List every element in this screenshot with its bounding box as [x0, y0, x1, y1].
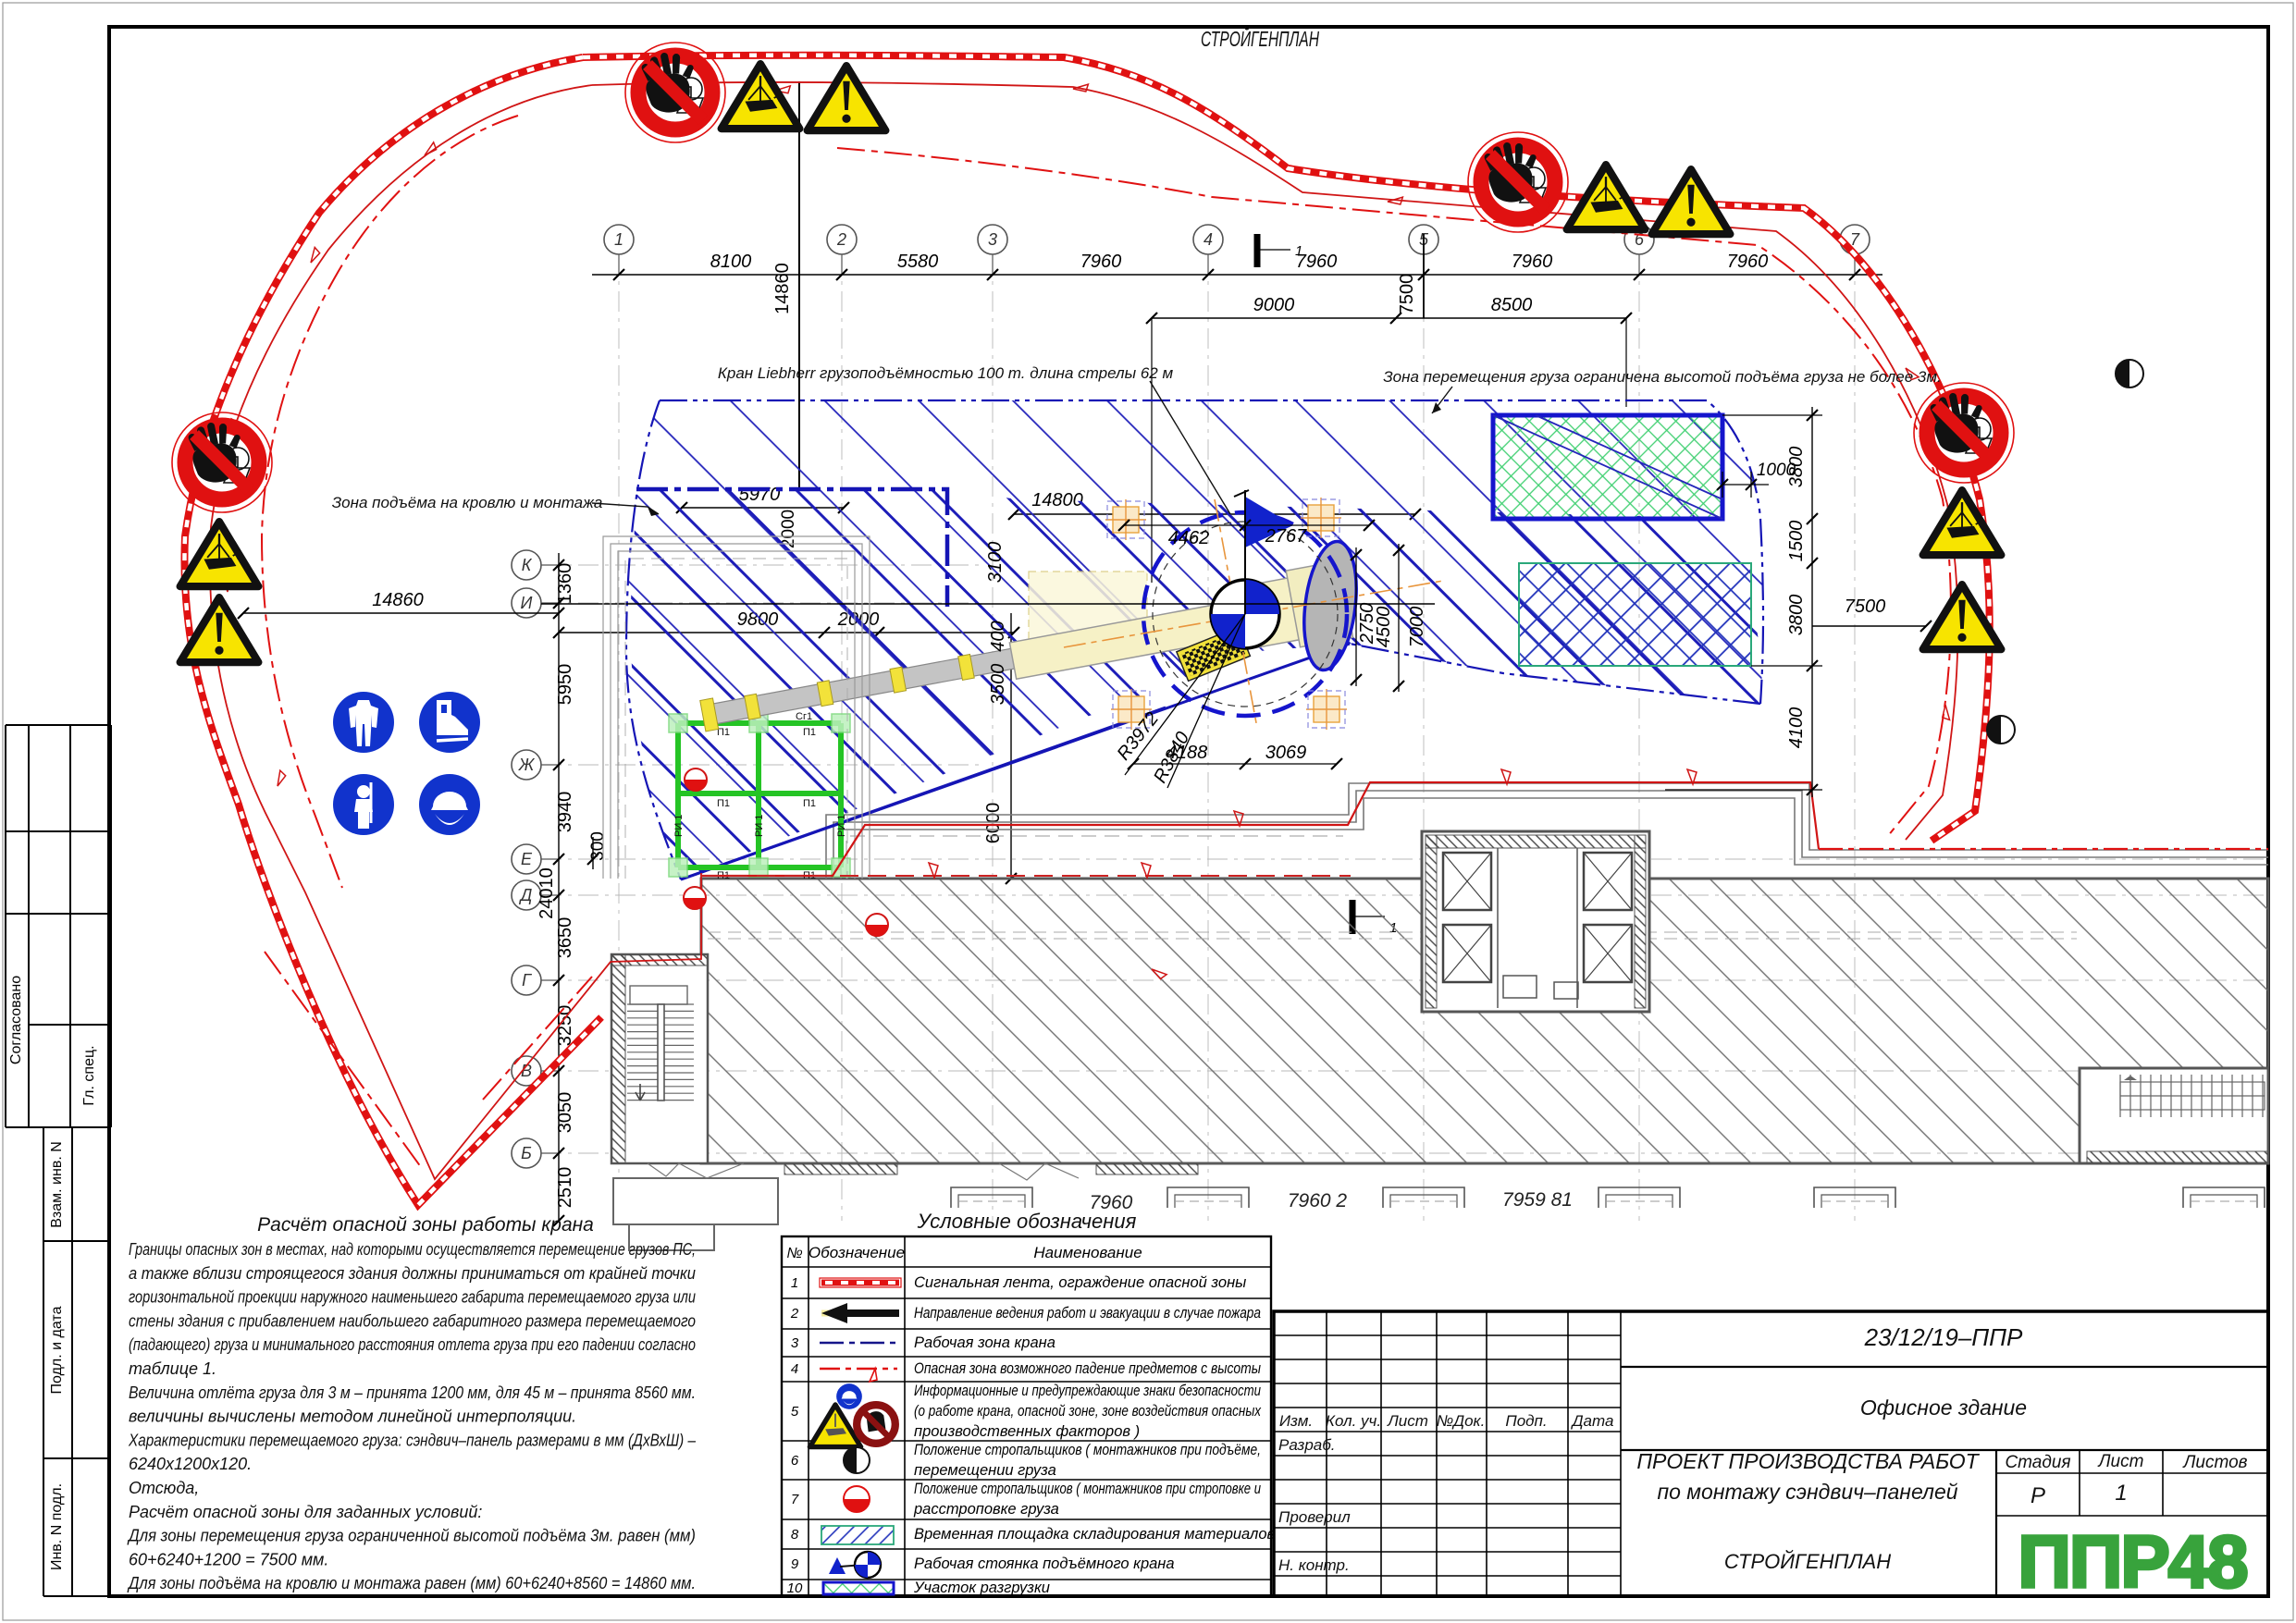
svg-text:Листов: Листов — [2181, 1453, 2247, 1472]
svg-text:Отсюда,: Отсюда, — [129, 1479, 199, 1497]
svg-text:ППР48: ППР48 — [2018, 1520, 2247, 1603]
svg-text:а также вблизи строящегося: а также вблизи строящегося здания должны… — [129, 1264, 696, 1283]
svg-text:1: 1 — [2115, 1481, 2127, 1506]
svg-text:Лист: Лист — [1387, 1412, 1428, 1430]
svg-text:Направление ведения работ и эв: Направление ведения работ и эвакуации в … — [914, 1305, 1261, 1322]
svg-text:Ж: Ж — [518, 756, 536, 774]
svg-text:Подл. и дата: Подл. и дата — [49, 1306, 65, 1394]
svg-text:Обозначение: Обозначение — [809, 1244, 905, 1261]
svg-text:3069: 3069 — [1265, 743, 1307, 763]
svg-text:СТРОЙГЕНПЛАН: СТРОЙГЕНПЛАН — [1201, 26, 1319, 51]
svg-text:3: 3 — [791, 1335, 799, 1351]
svg-text:Д: Д — [519, 886, 533, 904]
svg-text:Офисное здание: Офисное здание — [1860, 1396, 2027, 1420]
svg-text:7959 81: 7959 81 — [1502, 1189, 1573, 1211]
svg-text:горизонтальной проекции нару: горизонтальной проекции наружного наимен… — [129, 1288, 696, 1307]
svg-text:Положение стропальщиков ( монт: Положение стропальщиков ( монтажников пр… — [914, 1481, 1261, 1497]
svg-text:Расчёт опасной зоны для за: Расчёт опасной зоны для заданных условий… — [129, 1503, 482, 1521]
svg-text:4: 4 — [791, 1361, 798, 1377]
svg-text:400: 400 — [988, 621, 1008, 651]
svg-text:4462: 4462 — [1168, 528, 1210, 548]
svg-text:3800: 3800 — [1786, 447, 1807, 488]
svg-text:Подп.: Подп. — [1505, 1412, 1547, 1430]
svg-text:П1: П1 — [717, 798, 730, 809]
svg-text:Е: Е — [521, 850, 533, 868]
svg-text:14860: 14860 — [372, 590, 424, 610]
svg-text:4100: 4100 — [1786, 707, 1807, 749]
svg-text:2: 2 — [836, 230, 846, 249]
svg-text:4: 4 — [1204, 230, 1213, 249]
svg-text:5950: 5950 — [555, 664, 575, 706]
svg-text:Границы опасных зон в мест: Границы опасных зон в местах, над которы… — [129, 1240, 696, 1259]
svg-text:Б: Б — [521, 1144, 532, 1162]
svg-text:(падающего) груза и минимал: (падающего) груза и минимального расстоя… — [129, 1335, 696, 1354]
svg-text:по монтажу сэндвич–панелей: по монтажу сэндвич–панелей — [1657, 1480, 1957, 1504]
svg-text:8: 8 — [791, 1527, 799, 1543]
svg-text:23/12/19–ППР: 23/12/19–ППР — [1864, 1323, 2023, 1351]
svg-text:таблице 1.: таблице 1. — [129, 1359, 216, 1378]
svg-text:Опасная зона возможного падени: Опасная зона возможного падение предмето… — [914, 1360, 1261, 1377]
svg-text:5580: 5580 — [897, 252, 939, 272]
svg-text:6000: 6000 — [983, 803, 1004, 844]
svg-text:СТРОЙГЕНПЛАН: СТРОЙГЕНПЛАН — [1724, 1549, 1891, 1573]
svg-text:5: 5 — [791, 1404, 799, 1420]
svg-text:1: 1 — [1295, 243, 1302, 259]
svg-text:Зона перемещения груза ограни: Зона перемещения груза ограничена высото… — [1383, 368, 1941, 386]
svg-text:Лист: Лист — [2097, 1452, 2144, 1471]
svg-text:Кран Liebherr грузоподъёмност: Кран Liebherr грузоподъёмностью 100 т. д… — [718, 364, 1174, 382]
svg-text:Изм.: Изм. — [1279, 1412, 1313, 1430]
svg-text:Согласовано: Согласовано — [8, 976, 24, 1064]
svg-text:№: № — [786, 1246, 802, 1261]
svg-text:Условные обозначения: Условные обозначения — [917, 1210, 1137, 1233]
svg-text:величины вычислены методом: величины вычислены методом линейной инте… — [129, 1408, 576, 1426]
svg-text:1: 1 — [614, 230, 623, 249]
svg-text:Гл. спец.: Гл. спец. — [81, 1045, 97, 1105]
svg-text:РИ 1: РИ 1 — [754, 815, 765, 837]
svg-text:Для зоны перемещения груза: Для зоны перемещения груза ограниченной … — [127, 1527, 696, 1545]
svg-text:1500: 1500 — [1786, 521, 1807, 562]
svg-text:Временная площадка складирован: Временная площадка складирования материа… — [914, 1526, 1276, 1543]
svg-text:расстроповке груза: расстроповке груза — [913, 1501, 1059, 1518]
svg-text:3800: 3800 — [1786, 595, 1807, 636]
svg-text:Р: Р — [2031, 1483, 2045, 1508]
svg-text:24010: 24010 — [537, 867, 557, 919]
svg-text:Г: Г — [522, 971, 532, 990]
svg-text:10: 10 — [787, 1580, 803, 1596]
svg-text:7: 7 — [791, 1492, 799, 1507]
svg-text:Дата: Дата — [1571, 1412, 1614, 1430]
svg-text:7960: 7960 — [1080, 252, 1122, 272]
svg-text:1: 1 — [791, 1275, 798, 1291]
svg-text:Для зоны подъёма на кровлю: Для зоны подъёма на кровлю и монтажа рав… — [127, 1574, 696, 1592]
svg-text:Характеристики перемещаемого: Характеристики перемещаемого груза: сэнд… — [128, 1431, 697, 1449]
svg-text:6240х1200х120.: 6240х1200х120. — [129, 1455, 252, 1473]
svg-text:9000: 9000 — [1253, 295, 1295, 315]
svg-text:3650: 3650 — [555, 917, 575, 959]
svg-text:7960: 7960 — [1512, 252, 1553, 272]
svg-text:9: 9 — [791, 1556, 799, 1572]
svg-text:стены здания с прибавлением: стены здания с прибавлением наибольшего … — [129, 1311, 696, 1330]
svg-text:8500: 8500 — [1491, 295, 1533, 315]
svg-text:Н. контр.: Н. контр. — [1278, 1556, 1350, 1574]
svg-text:Рабочая стоянка подъёмного кра: Рабочая стоянка подъёмного крана — [914, 1555, 1175, 1572]
svg-text:4500: 4500 — [1374, 607, 1394, 648]
svg-text:Стадия: Стадия — [2005, 1453, 2070, 1472]
svg-text:К: К — [522, 556, 533, 574]
svg-text:2: 2 — [790, 1306, 799, 1322]
svg-text:Разраб.: Разраб. — [1278, 1436, 1336, 1454]
svg-text:2767: 2767 — [1265, 526, 1307, 547]
svg-text:7960 2: 7960 2 — [1288, 1190, 1348, 1211]
svg-text:7500: 7500 — [1845, 596, 1886, 617]
svg-text:перемещении груза: перемещении груза — [914, 1462, 1056, 1479]
svg-text:300: 300 — [588, 831, 608, 861]
svg-text:№Док.: №Док. — [1437, 1412, 1486, 1430]
svg-text:Величина отлёта груза для: Величина отлёта груза для 3 м – принята … — [129, 1383, 696, 1402]
svg-text:производственных факторов ): производственных факторов ) — [914, 1423, 1140, 1440]
svg-text:6: 6 — [791, 1453, 799, 1469]
svg-text:Сг1: Сг1 — [796, 711, 812, 722]
svg-text:3500: 3500 — [988, 664, 1008, 706]
svg-text:2510: 2510 — [555, 1167, 575, 1209]
svg-text:(о работе крана, опасной з: (о работе крана, опасной зоне, зоне возд… — [914, 1403, 1262, 1420]
svg-text:Взам. инв. N: Взам. инв. N — [49, 1141, 65, 1228]
svg-text:Рабочая зона крана: Рабочая зона крана — [914, 1334, 1055, 1351]
svg-text:П1: П1 — [717, 727, 730, 738]
svg-text:И: И — [521, 594, 533, 612]
svg-text:Инв. N подл.: Инв. N подл. — [49, 1483, 65, 1570]
svg-text:14860: 14860 — [772, 263, 793, 314]
svg-text:3100: 3100 — [985, 542, 1006, 584]
svg-text:Зона подъёма на кровлю и монта: Зона подъёма на кровлю и монтажа — [332, 494, 603, 511]
svg-text:3: 3 — [988, 230, 997, 249]
svg-text:7500: 7500 — [1397, 274, 1417, 315]
svg-text:Положение стропальщиков ( монт: Положение стропальщиков ( монтажников пр… — [914, 1442, 1261, 1458]
svg-text:Участок разгрузки: Участок разгрузки — [913, 1580, 1050, 1596]
svg-text:3940: 3940 — [555, 792, 575, 833]
svg-text:7000: 7000 — [1407, 607, 1427, 648]
svg-text:Проверил: Проверил — [1278, 1508, 1351, 1526]
svg-text:П1: П1 — [803, 727, 816, 738]
svg-text:Наименование: Наименование — [1033, 1244, 1142, 1261]
svg-text:Информационные и предупреждающ: Информационные и предупреждающие знаки б… — [914, 1383, 1261, 1399]
svg-text:Сигнальная лента, ограждение о: Сигнальная лента, ограждение опасной зон… — [914, 1274, 1246, 1291]
svg-text:РИ 1: РИ 1 — [673, 815, 685, 837]
svg-text:60+6240+1200 = 7500 мм.: 60+6240+1200 = 7500 мм. — [129, 1550, 328, 1568]
svg-text:7960: 7960 — [1727, 252, 1769, 272]
svg-text:8100: 8100 — [710, 252, 752, 272]
svg-text:Расчёт опасной зоны работы кра: Расчёт опасной зоны работы крана — [257, 1214, 594, 1236]
svg-text:3050: 3050 — [555, 1092, 575, 1134]
svg-text:ПРОЕКТ ПРОИЗВОДСТВА РАБОТ: ПРОЕКТ ПРОИЗВОДСТВА РАБОТ — [1636, 1449, 1980, 1473]
svg-text:П1: П1 — [803, 798, 816, 809]
svg-text:1360: 1360 — [555, 563, 575, 605]
svg-text:РИ 1: РИ 1 — [836, 815, 847, 837]
svg-text:Кол. уч.: Кол. уч. — [1326, 1412, 1381, 1430]
